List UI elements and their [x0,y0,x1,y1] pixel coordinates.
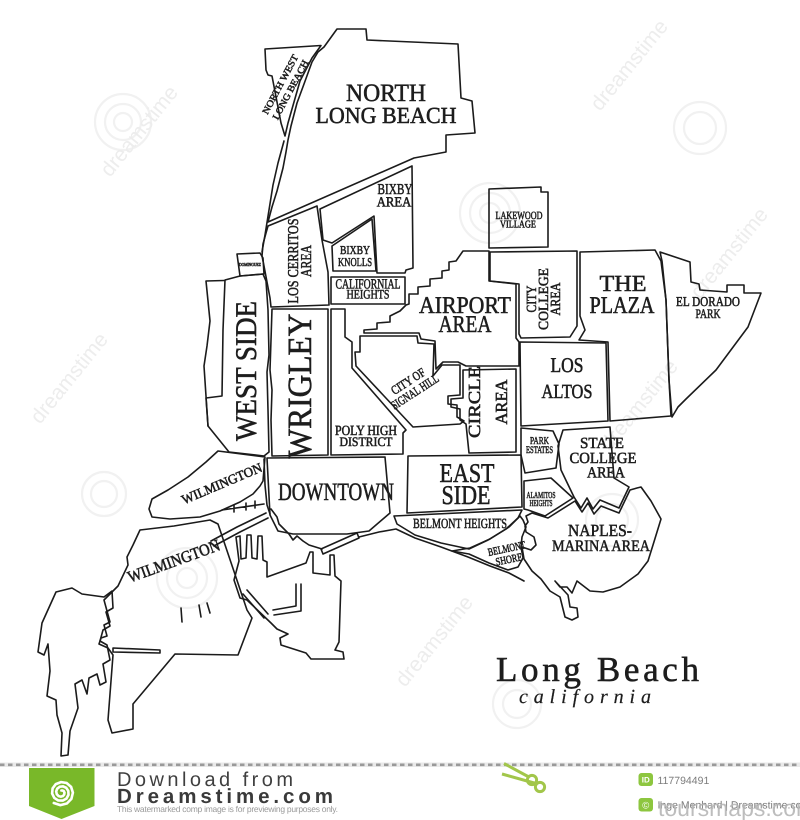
svg-text:This watermarked comp image is: This watermarked comp image is for previ… [117,804,338,814]
svg-text:AREA: AREA [377,196,412,211]
svg-text:PLAZA: PLAZA [590,293,656,319]
svg-text:dreamstime: dreamstime [26,328,113,428]
svg-text:WILMINGTON: WILMINGTON [179,460,264,508]
svg-text:DISTRICT: DISTRICT [340,434,393,449]
svg-text:WRIGLEY: WRIGLEY [282,314,319,459]
svg-text:HEIGHTS: HEIGHTS [347,287,390,302]
svg-text:AREA: AREA [492,379,511,425]
svg-text:AREA: AREA [549,282,564,316]
svg-text:HEIGHTS: HEIGHTS [530,498,553,508]
svg-text:AREA: AREA [587,465,626,482]
svg-text:CIRCLE: CIRCLE [465,366,484,438]
svg-text:PARK: PARK [696,306,721,321]
svg-text:©: © [642,800,649,811]
svg-text:KNOLLS: KNOLLS [338,255,372,269]
svg-text:ESTATES: ESTATES [526,445,553,456]
svg-text:dreamstime: dreamstime [96,81,183,181]
svg-text:LONG BEACH: LONG BEACH [316,103,457,128]
svg-text:WEST SIDE: WEST SIDE [230,301,263,441]
svg-text:ALTOS: ALTOS [542,381,593,403]
svg-text:BELMONT HEIGHTS: BELMONT HEIGHTS [413,517,507,532]
svg-text:MARINA AREA: MARINA AREA [552,538,650,555]
svg-text:AREA: AREA [299,245,315,277]
svg-text:Long Beach: Long Beach [496,650,700,689]
svg-text:toursmaps.com: toursmaps.com [658,795,800,820]
svg-text:AREA: AREA [439,312,493,338]
svg-text:dreamstime: dreamstime [391,591,478,691]
svg-text:DOWNTOWN: DOWNTOWN [278,479,394,506]
svg-text:dreamstime: dreamstime [586,15,673,115]
svg-text:DOMINGUEZ: DOMINGUEZ [239,262,261,267]
svg-text:california: california [519,686,651,708]
svg-text:VILLAGE: VILLAGE [500,220,536,231]
svg-text:SIDE: SIDE [442,480,491,510]
svg-text:LOS: LOS [551,353,584,377]
svg-text:117794491: 117794491 [658,775,710,787]
svg-text:ID: ID [642,776,650,785]
